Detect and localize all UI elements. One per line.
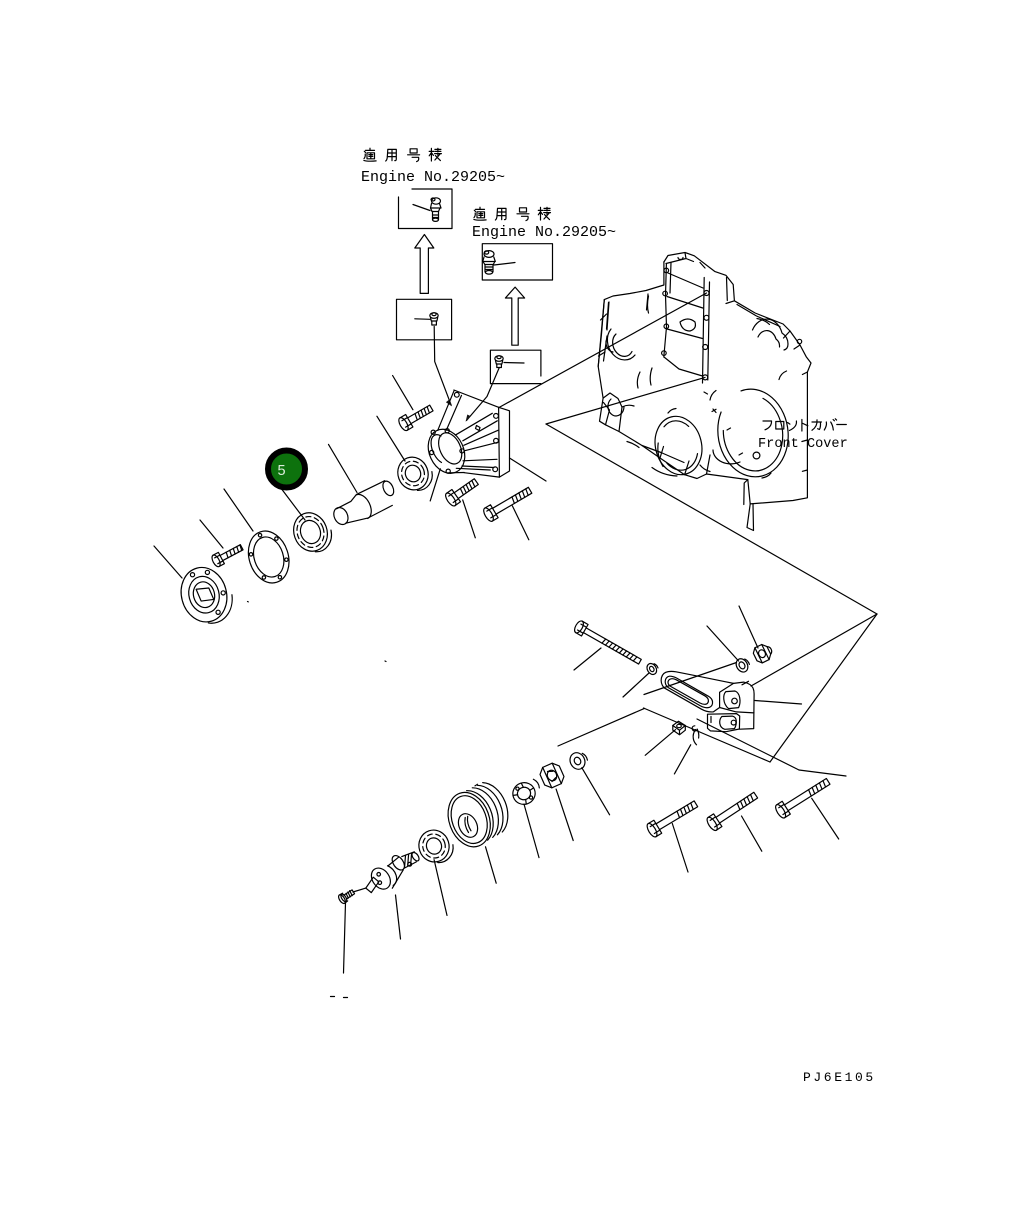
svg-text:5: 5 xyxy=(277,463,285,479)
svg-text:Engine No.29205~: Engine No.29205~ xyxy=(361,169,505,186)
svg-text:Engine No.29205~: Engine No.29205~ xyxy=(472,224,616,241)
svg-text:PJ6E105: PJ6E105 xyxy=(803,1070,876,1085)
svg-text:Front Cover: Front Cover xyxy=(758,437,848,452)
